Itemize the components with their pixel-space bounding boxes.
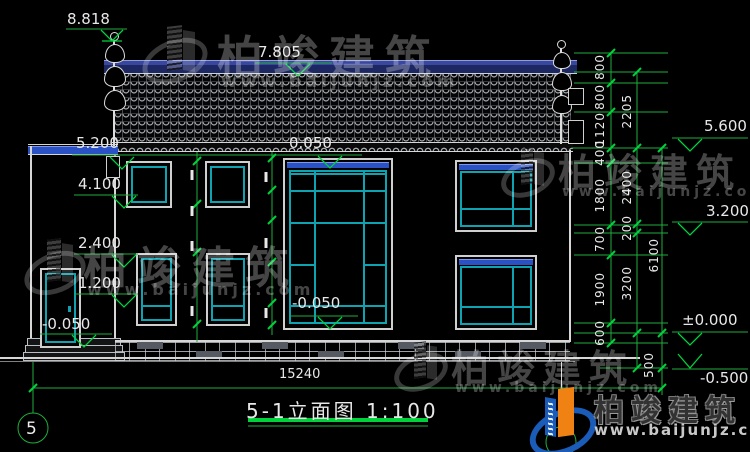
level-marker-0050: 0.050 bbox=[289, 136, 332, 151]
dim-inner-700: 700 bbox=[594, 226, 606, 252]
brand-logo-building-blue bbox=[545, 397, 556, 437]
watermark-url-text: www.baijunjz.com bbox=[562, 184, 750, 200]
watermark: 柏竣建筑 www.baijunjz.com bbox=[25, 228, 365, 300]
level-marker-minus500: -0.500 bbox=[700, 371, 748, 386]
dim-inner-1900: 1900 bbox=[594, 272, 606, 307]
watermark-logo-icon bbox=[502, 146, 554, 198]
brand-logo-building-orange bbox=[558, 387, 574, 437]
level-marker-wing-roof: 5.200 bbox=[76, 136, 119, 151]
level-marker-3200: 3.200 bbox=[706, 204, 749, 219]
level-marker-wing-floor: -0.050 bbox=[42, 317, 90, 332]
dim-mid-3200: 3200 bbox=[621, 266, 633, 301]
watermark: 柏竣建筑 www.baijunjz.com bbox=[395, 334, 695, 392]
level-marker-4100: 4.100 bbox=[78, 177, 121, 192]
level-marker-5600: 5.600 bbox=[704, 119, 747, 134]
watermark-logo-icon bbox=[25, 236, 85, 298]
watermark-logo-icon bbox=[143, 22, 209, 86]
level-marker-zero: ±0.000 bbox=[682, 313, 738, 328]
watermark-logo-icon bbox=[395, 340, 447, 392]
watermark-url-text: www.baijunjz.com bbox=[221, 72, 459, 92]
elevation-drawing-canvas: 8.818 5.200 4.100 2.400 1.200 -0.050 7.8… bbox=[0, 0, 750, 452]
brand-logo-block: 柏竣建筑 www.baijunjz.com bbox=[532, 386, 750, 450]
dim-inner-800a: 800 bbox=[594, 54, 606, 80]
watermark: 柏竣建筑 www.baijunjz.com bbox=[502, 140, 750, 198]
dim-inner-800b: 800 bbox=[594, 84, 606, 110]
brand-url-text: www.baijunjz.com bbox=[594, 421, 750, 439]
dim-mid-2205: 2205 bbox=[621, 94, 633, 129]
dim-mid-200: 200 bbox=[621, 215, 633, 241]
axis-bubble-label: 5 bbox=[26, 419, 37, 439]
watermark: 柏竣建筑 www.baijunjz.com bbox=[143, 18, 523, 82]
level-marker-finial-top: 8.818 bbox=[67, 12, 110, 27]
overall-width-dimension: 15240 bbox=[279, 368, 320, 381]
dim-outer-6100: 6100 bbox=[648, 238, 660, 273]
drawing-title: 5-1立面图 1:100 bbox=[246, 395, 439, 424]
watermark-url-text: www.baijunjz.com bbox=[87, 280, 314, 299]
